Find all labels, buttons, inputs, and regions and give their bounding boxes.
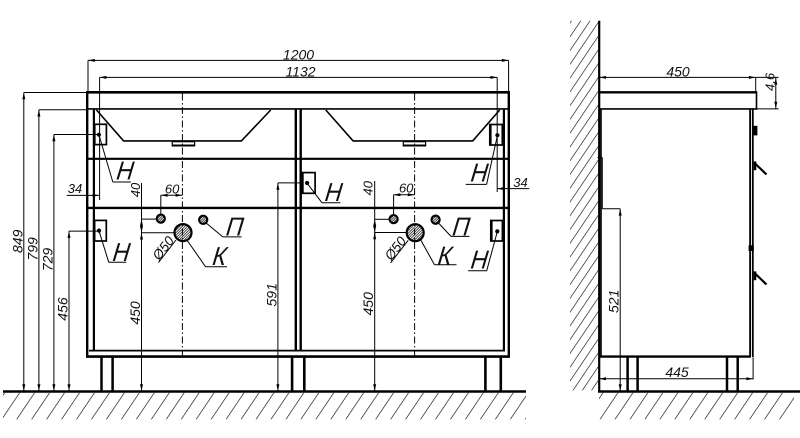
svg-text:Н: Н	[469, 246, 489, 274]
svg-text:729: 729	[39, 248, 55, 272]
svg-text:445: 445	[665, 364, 689, 380]
svg-text:Н: Н	[111, 239, 131, 267]
svg-text:40: 40	[361, 180, 376, 195]
svg-text:799: 799	[24, 237, 40, 261]
svg-text:4,6: 4,6	[762, 72, 777, 91]
svg-text:34: 34	[513, 175, 527, 190]
svg-text:456: 456	[55, 297, 71, 321]
svg-text:1200: 1200	[283, 46, 314, 62]
svg-text:450: 450	[666, 64, 690, 80]
svg-text:Н: Н	[469, 160, 489, 188]
svg-text:450: 450	[360, 292, 376, 316]
svg-text:849: 849	[9, 229, 25, 253]
svg-text:1132: 1132	[285, 64, 315, 80]
svg-text:521: 521	[606, 290, 622, 313]
svg-text:60: 60	[399, 181, 414, 196]
svg-text:Н: Н	[115, 158, 135, 186]
svg-text:591: 591	[264, 283, 280, 306]
svg-text:450: 450	[127, 301, 143, 325]
svg-text:40: 40	[128, 182, 143, 197]
svg-text:Н: Н	[323, 179, 343, 207]
svg-text:60: 60	[165, 182, 180, 197]
svg-text:34: 34	[68, 181, 82, 196]
